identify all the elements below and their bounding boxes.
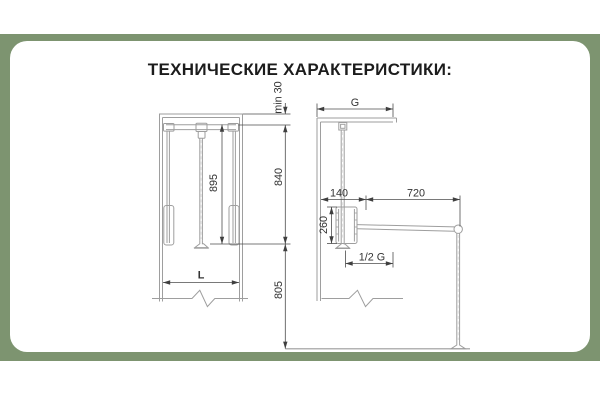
label-895: 895	[208, 174, 220, 192]
side-view-diagram	[317, 118, 465, 349]
label-720: 720	[407, 188, 425, 200]
rod-foot	[195, 240, 208, 247]
label-840: 840	[273, 168, 285, 186]
pull-rod	[194, 138, 209, 248]
center-bracket	[196, 123, 207, 138]
label-min30: min 30	[273, 81, 285, 113]
handle-foot	[451, 342, 465, 349]
label-805: 805	[273, 281, 285, 299]
body-foot	[336, 241, 349, 249]
label-G: G	[351, 97, 359, 109]
swing-arm	[357, 225, 462, 234]
break-line-front	[152, 290, 248, 306]
right-strut	[229, 131, 239, 245]
label-halfG: 1/2 G	[359, 252, 385, 264]
hanging-rail	[164, 124, 239, 132]
lift-body	[335, 207, 357, 249]
pivot-joint	[454, 225, 462, 233]
label-L: L	[198, 270, 205, 282]
left-strut	[164, 131, 174, 245]
break-line-side	[322, 290, 404, 306]
handle-rod	[451, 233, 465, 348]
ceiling-rod	[339, 123, 347, 241]
dimension-arrows	[163, 107, 460, 349]
technical-drawing: min 30 840 895 805 L G 140 720 260 1/2 G	[0, 0, 600, 400]
label-140: 140	[330, 188, 348, 200]
label-260: 260	[318, 216, 330, 234]
